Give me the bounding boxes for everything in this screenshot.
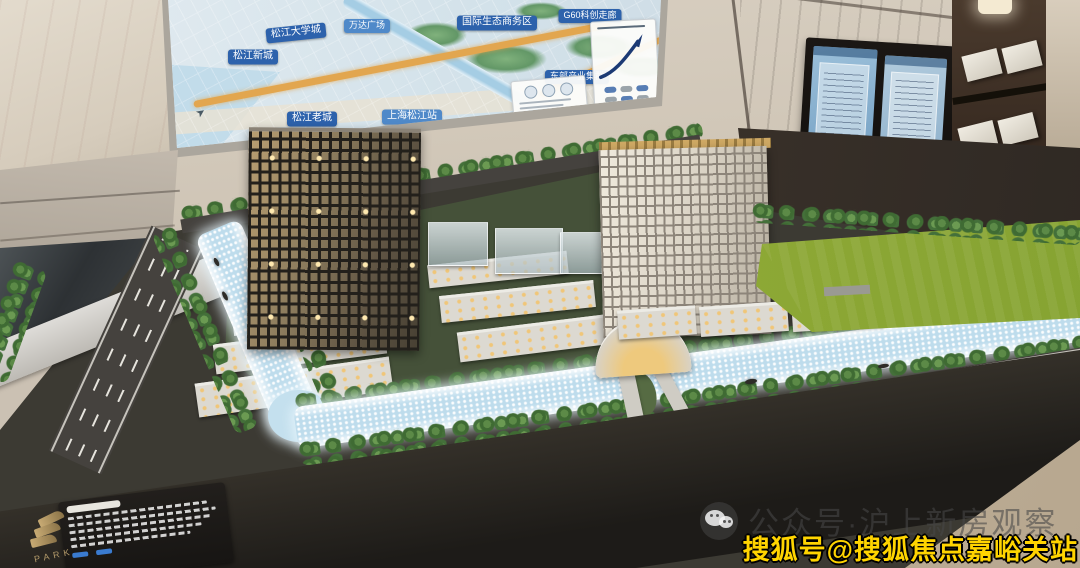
residential-tower-left (247, 127, 421, 350)
kiosk-screen-header (813, 46, 877, 59)
route-arrow-icon (593, 29, 656, 84)
sales-center-model-photo: 松江新城 松江大学城 万达广场 国际生态商务区 G60科创走廊 东部产业集群 松… (0, 0, 1080, 568)
glass-building (428, 222, 488, 266)
sohu-watermark: 搜狐号@搜狐焦点嘉峪关站 (743, 528, 1078, 567)
shelf-lamp (978, 0, 1012, 14)
glass-building (495, 228, 563, 274)
brochure (1001, 40, 1042, 74)
brochure (997, 112, 1038, 146)
brand-name: PARK (33, 546, 74, 564)
emblem-stroke (30, 533, 57, 548)
map-label-wanda-plaza: 万达广场 (344, 19, 390, 33)
left-pillar (0, 0, 190, 170)
marble-veins (0, 0, 190, 170)
wechat-icon (700, 502, 738, 540)
legend-circles (512, 81, 586, 100)
kiosk-screen-header (885, 55, 947, 68)
map-label-eco-business-district: 国际生态商务区 (457, 16, 537, 31)
corner-pillar (1046, 0, 1080, 170)
map-label-songjiang-old-town: 松江老城 (287, 112, 337, 127)
inset-logo-chips (594, 84, 658, 93)
commercial-building (699, 301, 789, 337)
brochure (961, 48, 1002, 82)
map-label-songjiang-new-city: 松江新城 (228, 50, 278, 65)
commercial-building (617, 305, 697, 339)
